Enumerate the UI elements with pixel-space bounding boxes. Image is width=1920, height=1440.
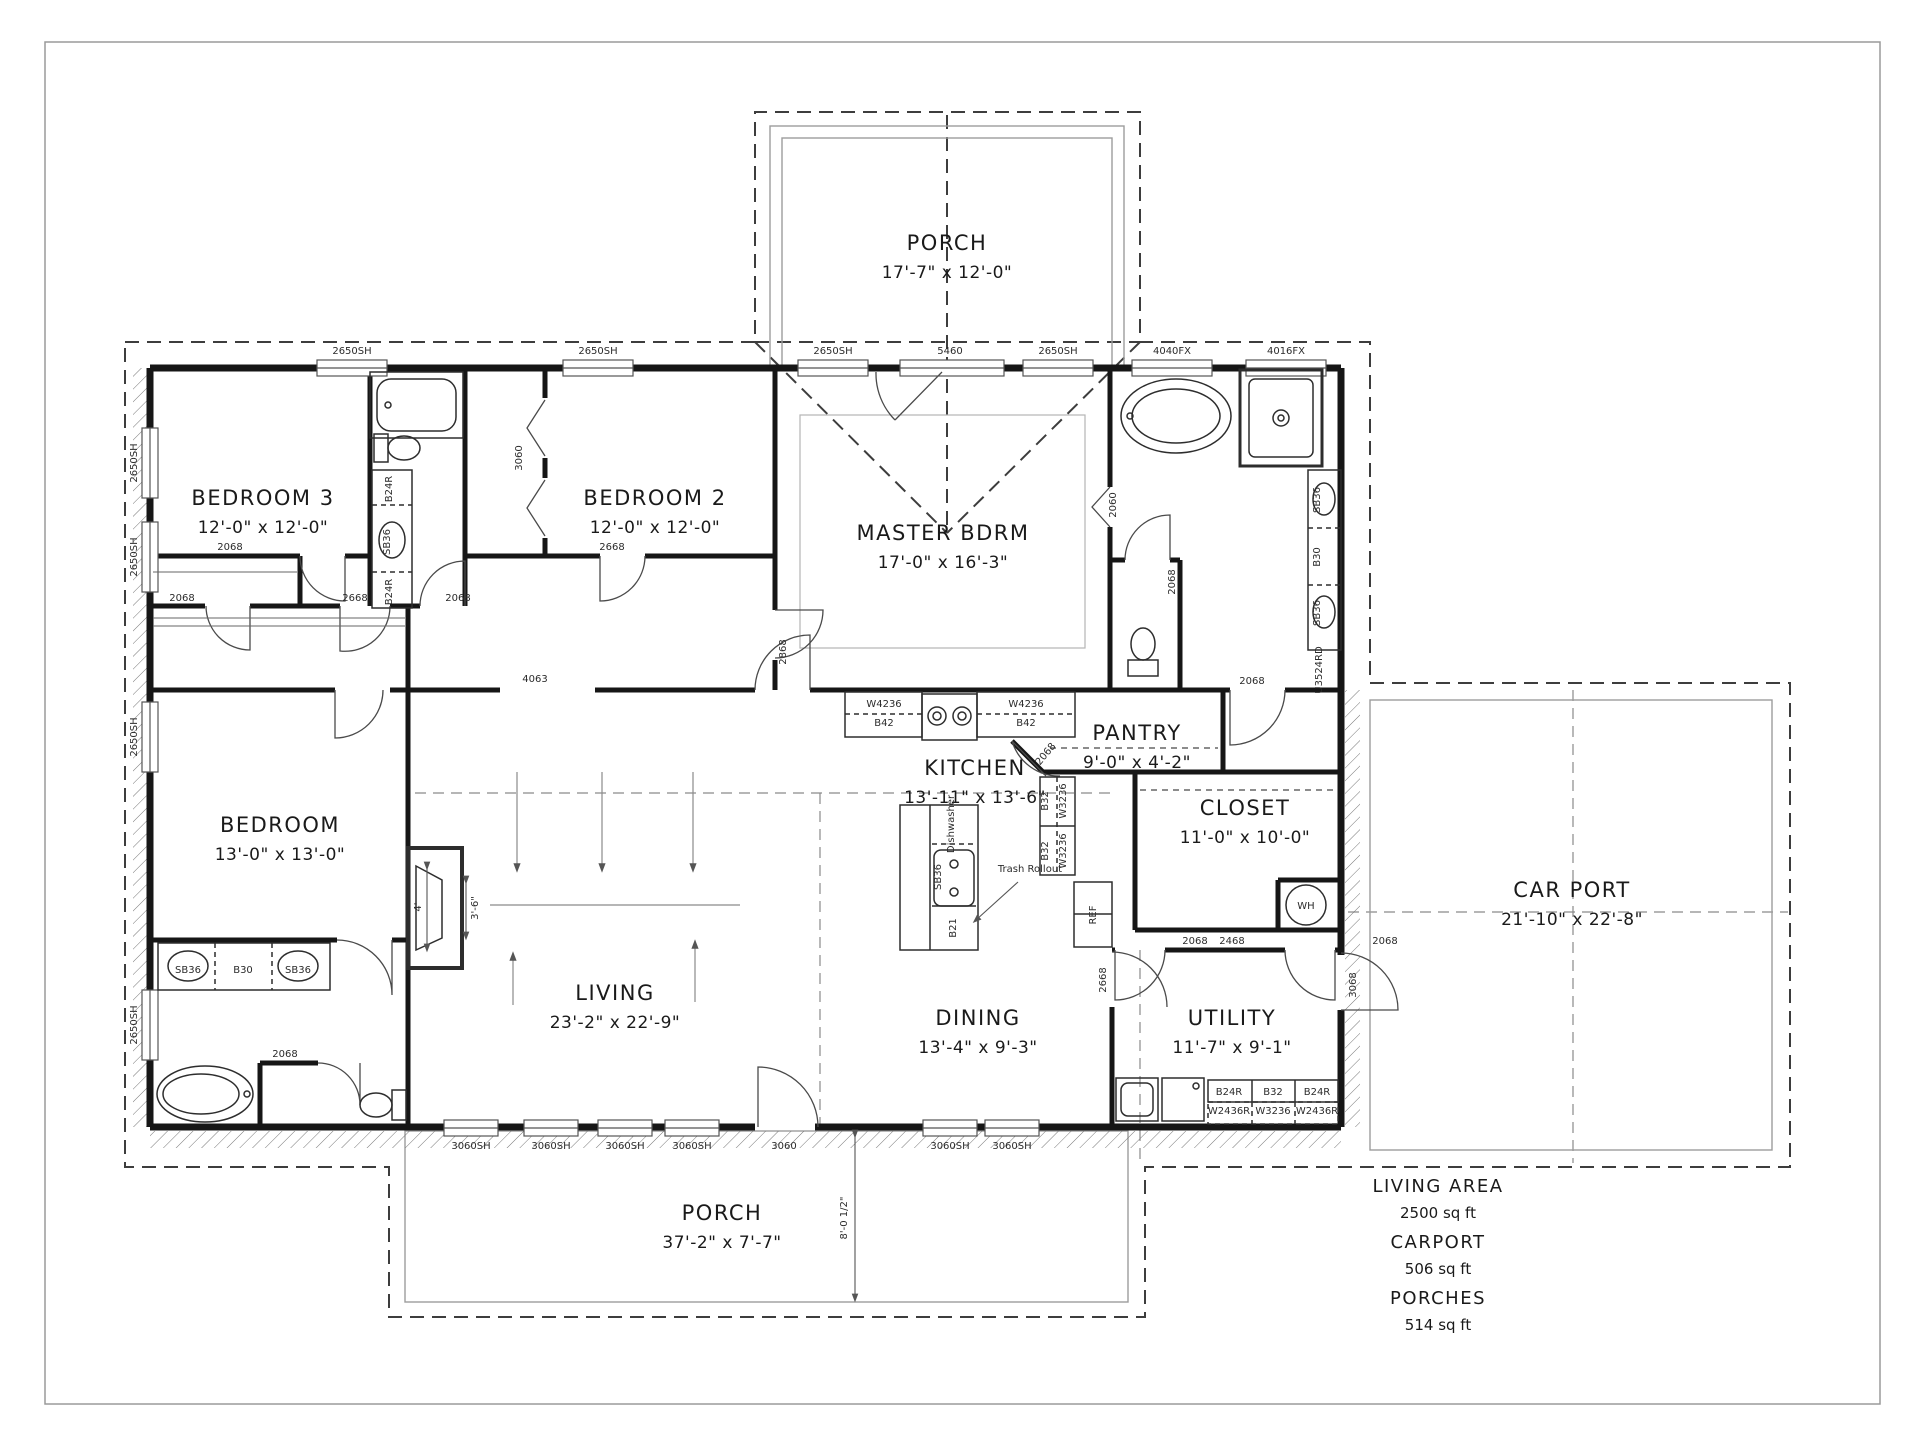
room-name-label: DINING: [935, 1006, 1020, 1030]
annotation-label: 2650SH: [332, 346, 371, 357]
lower-bath-toilet: [360, 1090, 406, 1120]
closet-bifold-1: [527, 400, 545, 456]
room-name-label: BEDROOM 2: [583, 486, 726, 510]
room-dims-label: 13'-4" x 9'-3": [918, 1038, 1037, 1058]
room-name-label: KITCHEN: [924, 756, 1026, 780]
annotation-label: 2650SH: [813, 346, 852, 357]
utility-right-door: [1285, 950, 1335, 1000]
annotation-label: 2068: [445, 593, 470, 604]
annotation-label: 2468: [1219, 936, 1244, 947]
annotation-label: 4040FX: [1153, 346, 1191, 357]
front-door: [758, 1067, 818, 1127]
room-dims-label: 12'-0" x 12'-0": [198, 518, 329, 538]
floor-plan-svg: PORCH17'-7" x 12'-0"BEDROOM 312'-0" x 12…: [0, 0, 1920, 1440]
annotation-label: REF: [1088, 905, 1099, 924]
annotation-label: B24R: [384, 476, 395, 503]
annotation-label: 2650SH: [129, 717, 140, 756]
bedroom3-door: [300, 556, 345, 601]
annotation-label: WH: [1297, 901, 1314, 912]
room-dims-label: 9'-0" x 4'-2": [1083, 753, 1191, 773]
room-name-label: BEDROOM 3: [191, 486, 334, 510]
annotation-label: 3'-6": [470, 896, 481, 920]
annotation-label: 2068: [1167, 569, 1178, 594]
annotation-label: SB36: [285, 965, 311, 976]
annotation-label: 2060: [1108, 492, 1119, 517]
annotation-label: 2668: [342, 593, 367, 604]
stat-label: CARPORT: [1390, 1232, 1485, 1253]
lower-bath-door: [337, 940, 392, 995]
wc-toilet: [1128, 628, 1158, 676]
room-name-label: BEDROOM: [220, 813, 340, 837]
annotation-label: 2650SH: [129, 537, 140, 576]
room-dims-label: 11'-0" x 10'-0": [1180, 828, 1311, 848]
stat-label: LIVING AREA: [1372, 1176, 1503, 1197]
windows: [142, 360, 1326, 1136]
annotation-label: Dishwasher: [946, 794, 957, 853]
annotation-label: B32: [1263, 1087, 1283, 1098]
annotation-label: 2068: [272, 1049, 297, 1060]
annotation-label: B30: [1312, 547, 1323, 567]
annotation-label: SB36: [933, 864, 944, 890]
wc-door: [1125, 515, 1170, 560]
annotation-label: B42: [874, 718, 894, 729]
trash-rollout-arrow: [976, 882, 1018, 920]
stat-label: PORCHES: [1390, 1288, 1486, 1309]
bedroom2-door: [600, 556, 645, 601]
room-name-label: LIVING: [575, 981, 654, 1005]
annotation-label: U3524RD: [1314, 646, 1325, 694]
room-name-label: PANTRY: [1092, 721, 1181, 745]
washer: [1116, 1078, 1158, 1121]
annotation-label: 3060SH: [992, 1141, 1031, 1152]
annotation-label: W3236: [1255, 1106, 1290, 1117]
annotation-label: 2668: [1098, 967, 1109, 992]
room-dims-label: 11'-7" x 9'-1": [1172, 1038, 1291, 1058]
annotation-label: 3060SH: [451, 1141, 490, 1152]
annotation-label: B30: [233, 965, 253, 976]
stat-value: 2500 sq ft: [1400, 1204, 1476, 1222]
fixtures: [153, 370, 1341, 1124]
master-garden-tub: [1121, 379, 1231, 453]
annotation-label: SB36: [1312, 600, 1323, 626]
annotation-label: 8'-0 1/2": [839, 1197, 850, 1240]
lower-bath-tub: [157, 1066, 253, 1122]
walkin-closet-door: [340, 606, 390, 651]
annotation-label: 3068: [1348, 972, 1359, 997]
master-porch-door: [876, 372, 942, 420]
room-dims-label: 13'-0" x 13'-0": [215, 845, 346, 865]
annotation-label: 3060: [514, 445, 525, 470]
annotation-label: 3060: [771, 1141, 796, 1152]
room-dims-label: 21'-10" x 22'-8": [1501, 910, 1643, 930]
dryer: [1162, 1078, 1204, 1121]
annotation-label: SB36: [1312, 487, 1323, 513]
annotation-label: B24R: [1216, 1087, 1243, 1098]
stat-value: 506 sq ft: [1405, 1260, 1472, 1278]
room-dims-label: 13'-11" x 13'-6": [904, 788, 1046, 808]
room-dims-label: 17'-7" x 12'-0": [882, 263, 1013, 283]
annotation-label: 3060SH: [930, 1141, 969, 1152]
kitchen-range: [922, 694, 977, 740]
annotation-label: B42: [1016, 718, 1036, 729]
room-name-label: CLOSET: [1200, 796, 1291, 820]
annotation-label: 2650SH: [578, 346, 617, 357]
annotation-label: 2068: [1182, 936, 1207, 947]
annotation-label: 2650SH: [1038, 346, 1077, 357]
annotation-label: B32: [1040, 791, 1051, 811]
annotation-label: 2068: [1239, 676, 1264, 687]
annotation-label: 2068: [1372, 936, 1397, 947]
annotation-label: W4236: [866, 699, 901, 710]
annotation-label: 5460: [937, 346, 962, 357]
dimension-lines: [427, 866, 855, 1298]
room-dims-label: 37'-2" x 7'-7": [662, 1233, 781, 1253]
room-name-label: MASTER BDRM: [857, 521, 1030, 545]
annotation-label: 4063: [522, 674, 547, 685]
room-name-label: PORCH: [682, 1201, 763, 1225]
annotation-label: 2868: [778, 639, 789, 664]
room-name-label: PORCH: [907, 231, 988, 255]
bedroom-door: [335, 690, 383, 738]
annotation-label: 2650SH: [129, 443, 140, 482]
hall-bath-tub: [370, 372, 463, 438]
annotation-label: B24R: [1304, 1087, 1331, 1098]
annotation-label: 3060SH: [605, 1141, 644, 1152]
closet-bifold-2: [527, 480, 545, 536]
annotation-label: 4': [413, 902, 424, 911]
room-dims-label: 23'-2" x 22'-9": [550, 1013, 681, 1033]
room-dims-label: 12'-0" x 12'-0": [590, 518, 721, 538]
stat-value: 514 sq ft: [1405, 1316, 1472, 1334]
tub-room-door: [318, 1063, 360, 1105]
closet-a-door: [206, 606, 250, 650]
annotation-label: W2436R: [1296, 1106, 1338, 1117]
room-name-label: UTILITY: [1188, 1006, 1276, 1030]
area-stats: LIVING AREA2500 sq ftCARPORT506 sq ftPOR…: [1372, 1176, 1503, 1334]
master-shower: [1240, 370, 1322, 466]
room-name-label: CAR PORT: [1513, 878, 1630, 902]
annotation-label: SB36: [382, 529, 393, 555]
annotation-label: B24R: [384, 579, 395, 606]
annotation-label: W3236: [1058, 783, 1069, 818]
annotation-label: B32: [1040, 841, 1051, 861]
annotation-label: 2668: [599, 542, 624, 553]
annotation-label: SB36: [175, 965, 201, 976]
annotation-label: 3060SH: [531, 1141, 570, 1152]
annotation-label: 4016FX: [1267, 346, 1305, 357]
annotation-label: 2068: [217, 542, 242, 553]
annotation-label: 3060SH: [672, 1141, 711, 1152]
annotation-label: Trash Rollout: [997, 864, 1062, 875]
floor-plan-page: PORCH17'-7" x 12'-0"BEDROOM 312'-0" x 12…: [0, 0, 1920, 1440]
annotation-label: 2068: [169, 593, 194, 604]
annotation-label: W4236: [1008, 699, 1043, 710]
room-dims-label: 17'-0" x 16'-3": [878, 553, 1009, 573]
annotation-label: 2650SH: [129, 1005, 140, 1044]
annotation-label: 2068: [1034, 741, 1059, 768]
ceiling-arrows: [490, 772, 740, 1005]
annotation-label: B21: [948, 918, 959, 938]
annotation-label: W2436R: [1208, 1106, 1250, 1117]
closet-hall-door: [1230, 690, 1285, 745]
